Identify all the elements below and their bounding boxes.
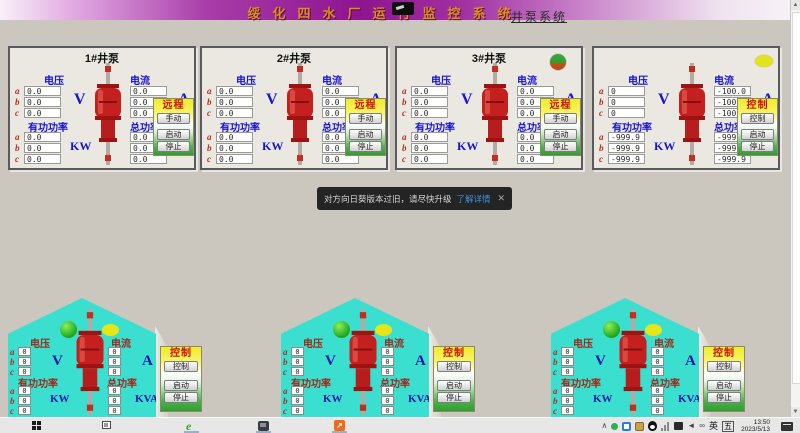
active-power-values: 0.00.00.0 [24, 132, 61, 165]
voltage-values: 0.00.00.0 [216, 86, 253, 119]
active-power-meter: abc 0.00.00.0 [207, 132, 253, 165]
phase-b-label: b [599, 143, 606, 154]
active-power-meter: abc -999.9-999.9-999.9 [599, 132, 645, 165]
active-power-value-a: 0 [18, 386, 31, 395]
house-shape: 电压 电流 abc 000 V 000 A 有功功率 总功率 abc 000 K… [551, 298, 699, 417]
kw-unit: KW [323, 393, 343, 405]
current-value-b: 0 [108, 357, 121, 366]
total-power-value-a: 0 [108, 386, 121, 395]
current-label: 电流 [714, 72, 734, 87]
phase-labels: abc [15, 86, 22, 119]
tray-app-icon-tan[interactable] [635, 422, 644, 431]
total-power-values: 000 [651, 386, 664, 415]
phase-labels: abc [553, 386, 560, 416]
active-power-value-c: 0 [18, 406, 31, 415]
phase-b-label: b [15, 97, 22, 108]
active-power-values: -999.9-999.9-999.9 [608, 132, 645, 165]
mode-label: 控制 [443, 348, 465, 360]
pump-panel-3: 3#井泵 电压 电流 abc 0.00.00.0 V 0.00.00.0 A 有… [395, 46, 583, 170]
current-value-a: 0 [651, 347, 664, 356]
phase-a-label: a [283, 347, 290, 357]
control-box: 远程 手动 启动 停止 [153, 98, 194, 156]
phase-b-label: b [10, 396, 17, 406]
phase-c-label: c [283, 367, 290, 377]
total-power-value-a: 0 [381, 386, 394, 395]
voltage-label: 电压 [236, 72, 256, 87]
voltage-values: 000 [608, 86, 645, 119]
voltage-value-a: 0.0 [24, 86, 61, 96]
toast-learn-more-link[interactable]: 了解详情 [457, 193, 491, 205]
phase-labels: abc [10, 347, 17, 377]
voltage-meter: abc 000 [283, 347, 304, 377]
volume-icon[interactable]: ◄ [687, 421, 695, 431]
control-box: 控制 控制 启动 停止 [737, 98, 778, 156]
current-label: 电流 [517, 72, 537, 87]
ime-mode-indicator[interactable]: 五 [722, 421, 734, 432]
control-box: 远程 手动 启动 停止 [540, 98, 581, 156]
current-meter: 000 [651, 347, 664, 376]
active-power-meter: abc 000 [283, 386, 304, 416]
start-button[interactable]: 启动 [157, 129, 190, 140]
pump-panel-4: 电压 电流 abc 000 V -100.0-100.0-100.0 A 有功功… [592, 46, 780, 170]
mode-button[interactable]: 控制 [437, 361, 471, 372]
active-power-values: 0.00.00.0 [411, 132, 448, 165]
voltage-meter: abc 000 [10, 347, 31, 377]
active-power-value-a: 0.0 [411, 132, 448, 142]
total-power-value-b: 0 [381, 396, 394, 405]
pump-graphic [674, 63, 710, 165]
house-shape: 电压 电流 abc 000 V 000 A 有功功率 总功率 abc 000 K… [281, 298, 429, 417]
clock-date: 2023/5/13 [741, 426, 770, 433]
phase-labels: abc [553, 347, 560, 377]
pump-graphic [70, 309, 110, 415]
active-power-value-c: 0 [291, 406, 304, 415]
phase-labels: abc [283, 386, 290, 416]
active-power-value-a: 0.0 [24, 132, 61, 142]
pump-graphic [90, 63, 126, 165]
active-power-value-a: 0.0 [216, 132, 253, 142]
volt-unit: V [52, 353, 63, 370]
pump-graphic [282, 63, 318, 165]
stop-button[interactable]: 停止 [164, 392, 198, 403]
stop-button[interactable]: 停止 [707, 392, 741, 403]
voltage-value-b: 0.0 [411, 97, 448, 107]
active-power-value-c: 0.0 [24, 154, 61, 164]
pump-panel-1: 1#井泵 电压 电流 abc 0.00.00.0 V 0.00.00.0 A 有… [8, 46, 196, 170]
stop-button[interactable]: 停止 [157, 141, 190, 152]
volt-unit: V [325, 353, 336, 370]
voltage-values: 000 [18, 347, 31, 377]
pump-graphic [477, 63, 513, 165]
phase-b-label: b [15, 143, 22, 154]
volt-unit: V [461, 91, 473, 109]
qq-icon[interactable] [648, 421, 657, 431]
toast-close-icon[interactable]: ✕ [498, 193, 506, 204]
sunflower-remote-icon[interactable]: ↗ [334, 420, 345, 431]
clock-time: 13:50 [741, 419, 770, 426]
phase-c-label: c [402, 108, 409, 119]
page-title: 绥化四水厂运行监控系统 [0, 3, 770, 22]
phase-a-label: a [15, 132, 22, 143]
voltage-value-b: 0 [561, 357, 574, 366]
voltage-label: 电压 [628, 72, 648, 87]
voltage-value-c: 0 [608, 108, 645, 118]
amp-unit: A [685, 353, 696, 370]
start-button[interactable]: 启动 [741, 129, 774, 140]
phase-b-label: b [553, 357, 560, 367]
voltage-value-b: 0 [18, 357, 31, 366]
stop-button[interactable]: 停止 [544, 141, 577, 152]
status-indicator-light [755, 55, 773, 67]
active-power-value-c: 0.0 [216, 154, 253, 164]
stop-button[interactable]: 停止 [437, 392, 471, 403]
voltage-value-a: 0 [18, 347, 31, 356]
mode-label: 远程 [355, 100, 377, 112]
link-icon[interactable]: ∞ [699, 421, 705, 431]
voltage-label: 电压 [30, 335, 50, 350]
volt-unit: V [266, 91, 278, 109]
active-power-value-b: -999.9 [608, 143, 645, 153]
current-meter: 000 [108, 347, 121, 376]
system-tray: ∧ ◄ ∞ 英 五 [602, 418, 735, 433]
active-power-meter: abc 000 [553, 386, 574, 416]
active-power-value-a: -999.9 [608, 132, 645, 142]
active-power-values: 000 [561, 386, 574, 416]
current-value-a: 0.0 [517, 86, 554, 96]
stop-button[interactable]: 停止 [349, 141, 382, 152]
status-indicator-light [550, 54, 566, 70]
volt-unit: V [595, 353, 606, 370]
mode-button[interactable]: 控制 [164, 361, 198, 372]
kva-unit: KVA [678, 393, 701, 405]
tray-expand-chevron-icon[interactable]: ∧ [602, 421, 608, 431]
voltage-value-a: 0 [291, 347, 304, 356]
phase-labels: abc [15, 132, 22, 165]
system-subtitle: 井泵系统 [511, 8, 567, 25]
phase-c-label: c [207, 108, 214, 119]
scroll-down-arrow-icon[interactable]: ▼ [791, 407, 800, 417]
active-power-value-b: 0 [561, 396, 574, 405]
active-power-value-a: 0 [291, 386, 304, 395]
phase-a-label: a [599, 86, 606, 97]
active-power-value-b: 0 [291, 396, 304, 405]
ime-language-indicator[interactable]: 英 [709, 421, 718, 431]
total-power-meter: 000 [381, 386, 394, 415]
tray-app-icon-blue[interactable] [622, 422, 631, 431]
voltage-meter: abc 000 [553, 347, 574, 377]
vertical-scrollbar[interactable]: ▲ ▼ [790, 0, 800, 417]
kw-unit: KW [50, 393, 70, 405]
voltage-values: 0.00.00.0 [411, 86, 448, 119]
phase-b-label: b [402, 143, 409, 154]
current-value-a: 0 [108, 347, 121, 356]
total-power-meter: 000 [651, 386, 664, 415]
mode-button[interactable]: 手动 [157, 113, 190, 124]
voltage-value-c: 0.0 [411, 108, 448, 118]
voltage-meter: abc 000 [599, 86, 645, 119]
phase-b-label: b [283, 396, 290, 406]
start-button[interactable]: 启动 [164, 380, 198, 391]
title-bar: 绥化四水厂运行监控系统 [0, 0, 800, 20]
total-power-values: 000 [381, 386, 394, 415]
active-power-values: 000 [291, 386, 304, 416]
status-dot-icon[interactable] [611, 423, 618, 430]
phase-labels: abc [10, 386, 17, 416]
control-box: 控制 控制 启动 停止 [703, 346, 745, 412]
current-values: 000 [651, 347, 664, 376]
current-value-a: -100.0 [714, 86, 751, 96]
current-label: 电流 [322, 72, 342, 87]
voltage-value-a: 0.0 [216, 86, 253, 96]
scroll-up-arrow-icon[interactable]: ▲ [791, 0, 800, 10]
phase-c-label: c [553, 406, 560, 416]
current-label: 电流 [130, 72, 150, 87]
active-power-value-a: 0 [561, 386, 574, 395]
toast-message: 对方向日葵版本过旧，请尽快升级 [324, 193, 452, 205]
phase-labels: abc [599, 132, 606, 165]
kw-unit: KW [262, 139, 283, 154]
active-power-value-c: 0.0 [411, 154, 448, 164]
voltage-value-b: 0.0 [216, 97, 253, 107]
start-button[interactable]: 启动 [437, 380, 471, 391]
voltage-value-a: 0.0 [411, 86, 448, 96]
active-power-value-b: 0.0 [216, 143, 253, 153]
cursor-artifact [392, 2, 414, 15]
total-power-value-b: 0 [651, 396, 664, 405]
active-power-meter: abc 0.00.00.0 [402, 132, 448, 165]
kw-unit: KW [654, 139, 675, 154]
active-power-value-b: 0.0 [24, 143, 61, 153]
phase-labels: abc [207, 86, 214, 119]
phase-c-label: c [599, 108, 606, 119]
house-pump-panel-2: 电压 电流 abc 000 V 000 A 有功功率 总功率 abc 000 K… [281, 298, 481, 418]
voltage-label: 电压 [44, 72, 64, 87]
taskbar: e ↗ ∧ ◄ ∞ 英 五 13:50 2023/5/13 [0, 417, 800, 433]
task-view-icon[interactable] [102, 421, 111, 429]
network-signal-icon[interactable] [661, 422, 670, 431]
total-power-value-c: 0 [108, 406, 121, 415]
voltage-value-a: 0 [561, 347, 574, 356]
total-power-meter: 000 [108, 386, 121, 415]
current-meter: 000 [381, 347, 394, 376]
phase-labels: abc [402, 86, 409, 119]
mode-label: 控制 [170, 348, 192, 360]
start-button[interactable] [32, 421, 41, 430]
phase-b-label: b [207, 143, 214, 154]
kw-unit: KW [457, 139, 478, 154]
phase-c-label: c [10, 406, 17, 416]
volt-unit: V [658, 91, 670, 109]
phase-a-label: a [402, 132, 409, 143]
control-box: 控制 控制 启动 停止 [160, 346, 202, 412]
mode-label: 远程 [550, 100, 572, 112]
notification-center-icon[interactable] [781, 422, 793, 431]
phase-a-label: a [15, 86, 22, 97]
control-box: 控制 控制 启动 停止 [433, 346, 475, 412]
phase-c-label: c [207, 154, 214, 165]
house-pump-panel-1: 电压 电流 abc 000 V 000 A 有功功率 总功率 abc 000 K… [8, 298, 208, 418]
house-shape: 电压 电流 abc 000 V 000 A 有功功率 总功率 abc 000 K… [8, 298, 156, 417]
kw-unit: KW [70, 139, 91, 154]
mode-button[interactable]: 手动 [349, 113, 382, 124]
active-power-value-b: 0 [18, 396, 31, 405]
current-value-b: 0 [381, 357, 394, 366]
total-power-values: 000 [108, 386, 121, 415]
voltage-label: 电压 [431, 72, 451, 87]
voltage-value-b: 0.0 [24, 97, 61, 107]
voltage-value-c: 0.0 [24, 108, 61, 118]
pump-panel-2: 2#井泵 电压 电流 abc 0.00.00.0 V 0.00.00.0 A 有… [200, 46, 388, 170]
toast-notification: 对方向日葵版本过旧，请尽快升级 了解详情 ✕ [317, 187, 512, 210]
phase-c-label: c [283, 406, 290, 416]
phase-labels: abc [599, 86, 606, 119]
voltage-meter: abc 0.00.00.0 [207, 86, 253, 119]
mode-label: 远程 [163, 100, 185, 112]
scrollbar-thumb[interactable] [792, 12, 800, 384]
phase-b-label: b [283, 357, 290, 367]
start-button[interactable]: 启动 [707, 380, 741, 391]
mode-label: 控制 [713, 348, 735, 360]
control-box: 远程 手动 启动 停止 [345, 98, 386, 156]
scada-screen: 绥化四水厂运行监控系统 井泵系统 1#井泵 电压 电流 abc 0.00.00.… [0, 0, 800, 433]
phase-a-label: a [402, 86, 409, 97]
house-pump-panel-3: 电压 电流 abc 000 V 000 A 有功功率 总功率 abc 000 K… [551, 298, 751, 418]
phase-a-label: a [207, 86, 214, 97]
active-power-meter: abc 000 [10, 386, 31, 416]
pump-graphic [343, 309, 383, 415]
start-button[interactable]: 启动 [349, 129, 382, 140]
voltage-value-b: 0 [291, 357, 304, 366]
hmi-app-icon[interactable] [258, 421, 269, 431]
phase-b-label: b [553, 396, 560, 406]
pump-graphic [613, 309, 653, 415]
stop-button[interactable]: 停止 [741, 141, 774, 152]
active-power-value-c: -999.9 [608, 154, 645, 164]
voltage-value-b: 0 [608, 97, 645, 107]
current-value-a: 0 [381, 347, 394, 356]
phase-a-label: a [207, 132, 214, 143]
phase-c-label: c [553, 367, 560, 377]
current-value-a: 0.0 [322, 86, 359, 96]
tray-app-icon-dark[interactable] [674, 422, 683, 430]
total-power-value-c: 0 [381, 406, 394, 415]
phase-c-label: c [402, 154, 409, 165]
voltage-value-c: 0.0 [216, 108, 253, 118]
phase-a-label: a [10, 386, 17, 396]
voltage-meter: abc 0.00.00.0 [402, 86, 448, 119]
amp-unit: A [415, 353, 426, 370]
voltage-label: 电压 [573, 335, 593, 350]
voltage-values: 000 [561, 347, 574, 377]
total-power-value-b: 0 [108, 396, 121, 405]
phase-labels: abc [207, 132, 214, 165]
phase-a-label: a [283, 386, 290, 396]
phase-a-label: a [10, 347, 17, 357]
phase-b-label: b [10, 357, 17, 367]
mode-button[interactable]: 控制 [707, 361, 741, 372]
phase-b-label: b [207, 97, 214, 108]
phase-b-label: b [599, 97, 606, 108]
mode-button[interactable]: 控制 [741, 113, 774, 124]
phase-c-label: c [599, 154, 606, 165]
current-value-b: 0 [651, 357, 664, 366]
total-power-value-a: 0 [651, 386, 664, 395]
active-power-value-c: 0 [561, 406, 574, 415]
voltage-meter: abc 0.00.00.0 [15, 86, 61, 119]
kva-unit: KVA [135, 393, 158, 405]
active-power-meter: abc 0.00.00.0 [15, 132, 61, 165]
voltage-values: 0.00.00.0 [24, 86, 61, 119]
phase-a-label: a [553, 386, 560, 396]
active-power-values: 0.00.00.0 [216, 132, 253, 165]
phase-c-label: c [15, 154, 22, 165]
phase-c-label: c [15, 108, 22, 119]
total-power-value-c: 0 [651, 406, 664, 415]
phase-a-label: a [553, 347, 560, 357]
phase-labels: abc [402, 132, 409, 165]
mode-button[interactable]: 手动 [544, 113, 577, 124]
start-button[interactable]: 启动 [544, 129, 577, 140]
phase-b-label: b [402, 97, 409, 108]
voltage-label: 电压 [303, 335, 323, 350]
taskbar-clock[interactable]: 13:50 2023/5/13 [741, 419, 770, 433]
kw-unit: KW [593, 393, 613, 405]
volt-unit: V [74, 91, 86, 109]
voltage-value-a: 0 [608, 86, 645, 96]
current-value-a: 0.0 [130, 86, 167, 96]
current-values: 000 [381, 347, 394, 376]
mode-label: 控制 [747, 100, 769, 112]
phase-labels: abc [283, 347, 290, 377]
current-values: 000 [108, 347, 121, 376]
active-power-values: 000 [18, 386, 31, 416]
amp-unit: A [142, 353, 153, 370]
voltage-values: 000 [291, 347, 304, 377]
active-power-value-b: 0.0 [411, 143, 448, 153]
kva-unit: KVA [408, 393, 431, 405]
phase-a-label: a [599, 132, 606, 143]
phase-c-label: c [10, 367, 17, 377]
